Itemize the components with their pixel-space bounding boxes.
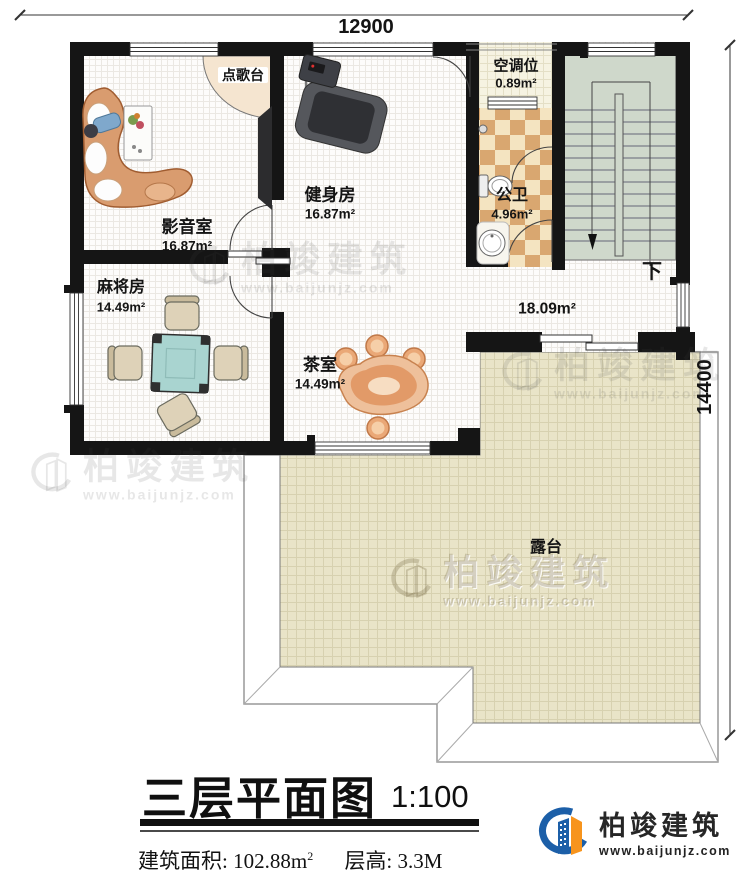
plan-stats: 建筑面积: 102.88m2 层高: 3.3M	[138, 845, 442, 875]
floorplan-page: 柏竣建筑 www.baijunjz.com 柏竣建筑 www.baijunjz.…	[0, 0, 750, 883]
room-area-hall: 18.09m²	[518, 301, 576, 317]
plan-scale: 1:100	[391, 779, 469, 815]
brand-logo: 柏竣建筑 www.baijunjz.com	[538, 806, 731, 864]
mahjong-table	[151, 334, 210, 393]
room-label-mahjong: 麻将房	[97, 280, 145, 296]
sink	[477, 222, 509, 264]
brand-name: 柏竣建筑	[599, 813, 731, 840]
floorplan-drawing	[0, 0, 750, 883]
room-label-gym: 健身房	[305, 187, 356, 204]
dimension-top: 12900	[338, 17, 394, 37]
room-area-ac: 0.89m²	[495, 77, 536, 90]
room-label-terrace: 露台	[530, 540, 562, 556]
area-label: 建筑面积:	[138, 849, 228, 873]
height-label: 层高:	[344, 849, 392, 873]
room-label-tea: 茶室	[303, 357, 337, 374]
room-area-tea: 14.49m²	[295, 377, 345, 391]
room-label-ac: 空调位	[493, 59, 538, 74]
chair-top	[165, 296, 199, 330]
brand-website: www.baijunjz.com	[599, 845, 731, 858]
room-label-karaoke: 点歌台	[218, 67, 268, 83]
room-label-media: 影音室	[162, 219, 213, 236]
room-area-mahjong: 14.49m²	[97, 301, 145, 314]
tv-screen	[258, 106, 272, 210]
chair-left	[108, 346, 142, 380]
coffee-table	[124, 106, 152, 160]
dimension-right: 14400	[695, 359, 715, 415]
brand-logo-icon	[538, 806, 590, 864]
title-rule-thin	[140, 830, 479, 832]
stairs-down-label: 下	[642, 262, 662, 282]
title-rule-thick	[140, 819, 479, 826]
chair-right	[214, 346, 248, 380]
room-area-gym: 16.87m²	[305, 207, 355, 221]
plan-title: 三层平面图	[142, 762, 377, 827]
area-value: 102.88m	[233, 849, 307, 873]
room-area-media: 16.87m²	[162, 239, 212, 253]
shower-head	[479, 125, 487, 133]
staircase	[563, 53, 676, 266]
room-label-bath: 公卫	[496, 188, 528, 204]
height-value: 3.3M	[398, 849, 443, 873]
room-area-bath: 4.96m²	[491, 208, 532, 221]
area-sup: 2	[307, 849, 313, 863]
